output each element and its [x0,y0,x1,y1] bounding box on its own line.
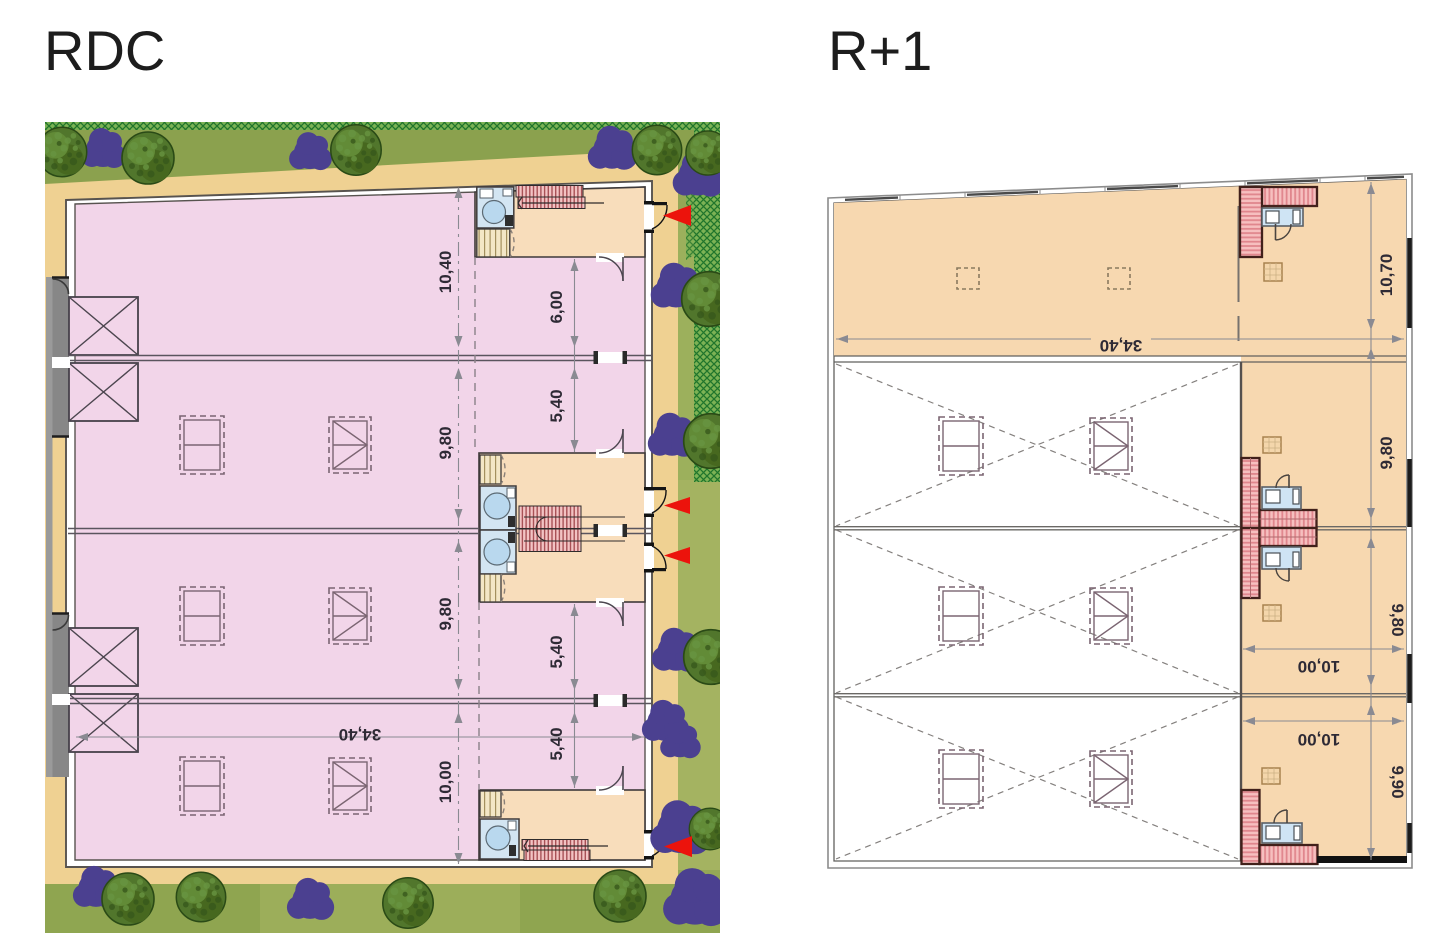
svg-text:5,40: 5,40 [547,389,566,422]
svg-text:34,40: 34,40 [1100,336,1143,355]
svg-text:10,70: 10,70 [1377,254,1396,297]
svg-text:10,00: 10,00 [436,761,455,804]
svg-text:9,90: 9,90 [1388,765,1407,798]
svg-text:9,80: 9,80 [1377,436,1396,469]
svg-text:10,40: 10,40 [436,251,455,294]
svg-text:R+1: R+1 [828,19,932,82]
svg-text:9,80: 9,80 [436,426,455,459]
svg-text:9,80: 9,80 [1388,603,1407,636]
svg-text:9,80: 9,80 [436,597,455,630]
svg-text:RDC: RDC [44,19,165,82]
svg-text:5,40: 5,40 [547,727,566,760]
svg-text:6,00: 6,00 [547,290,566,323]
svg-text:5,40: 5,40 [547,635,566,668]
svg-text:10,00: 10,00 [1298,730,1341,749]
svg-text:10,00: 10,00 [1298,657,1341,676]
svg-text:34,40: 34,40 [339,725,382,744]
